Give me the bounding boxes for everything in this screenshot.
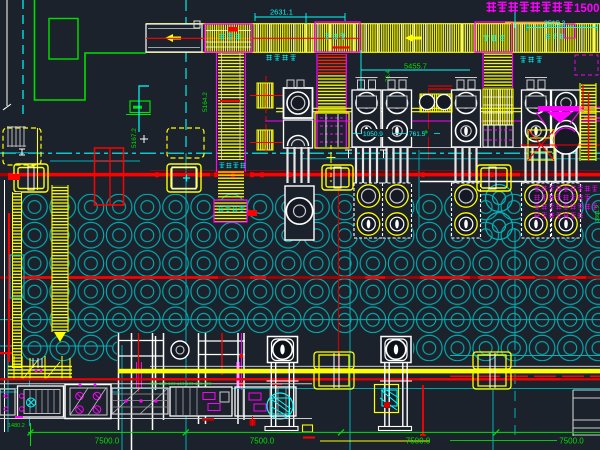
svg-text:3861.9: 3861.9	[595, 205, 600, 222]
svg-text:5164.2: 5164.2	[202, 92, 209, 112]
svg-text:1500m: 1500m	[574, 3, 600, 15]
svg-text:5455.7: 5455.7	[404, 62, 427, 71]
svg-text:1480.2: 1480.2	[8, 423, 25, 429]
svg-text:7500.0: 7500.0	[95, 437, 120, 446]
svg-text:600: 600	[204, 381, 212, 386]
svg-text:7500.0: 7500.0	[406, 437, 431, 446]
svg-text:3515.3: 3515.3	[544, 21, 566, 28]
svg-text:150: 150	[177, 381, 185, 386]
svg-text:600: 600	[150, 381, 158, 386]
svg-text:761.5: 761.5	[409, 131, 426, 138]
svg-text:600: 600	[186, 381, 194, 386]
svg-text:150: 150	[159, 381, 167, 386]
svg-text:5167.2: 5167.2	[131, 128, 138, 148]
svg-text:2631.1: 2631.1	[270, 8, 293, 17]
svg-text:7500.0: 7500.0	[250, 437, 275, 446]
svg-text:7500.0: 7500.0	[559, 437, 584, 446]
svg-text:600: 600	[168, 381, 176, 386]
svg-text:150: 150	[195, 381, 203, 386]
svg-text:1050.9: 1050.9	[363, 131, 383, 138]
